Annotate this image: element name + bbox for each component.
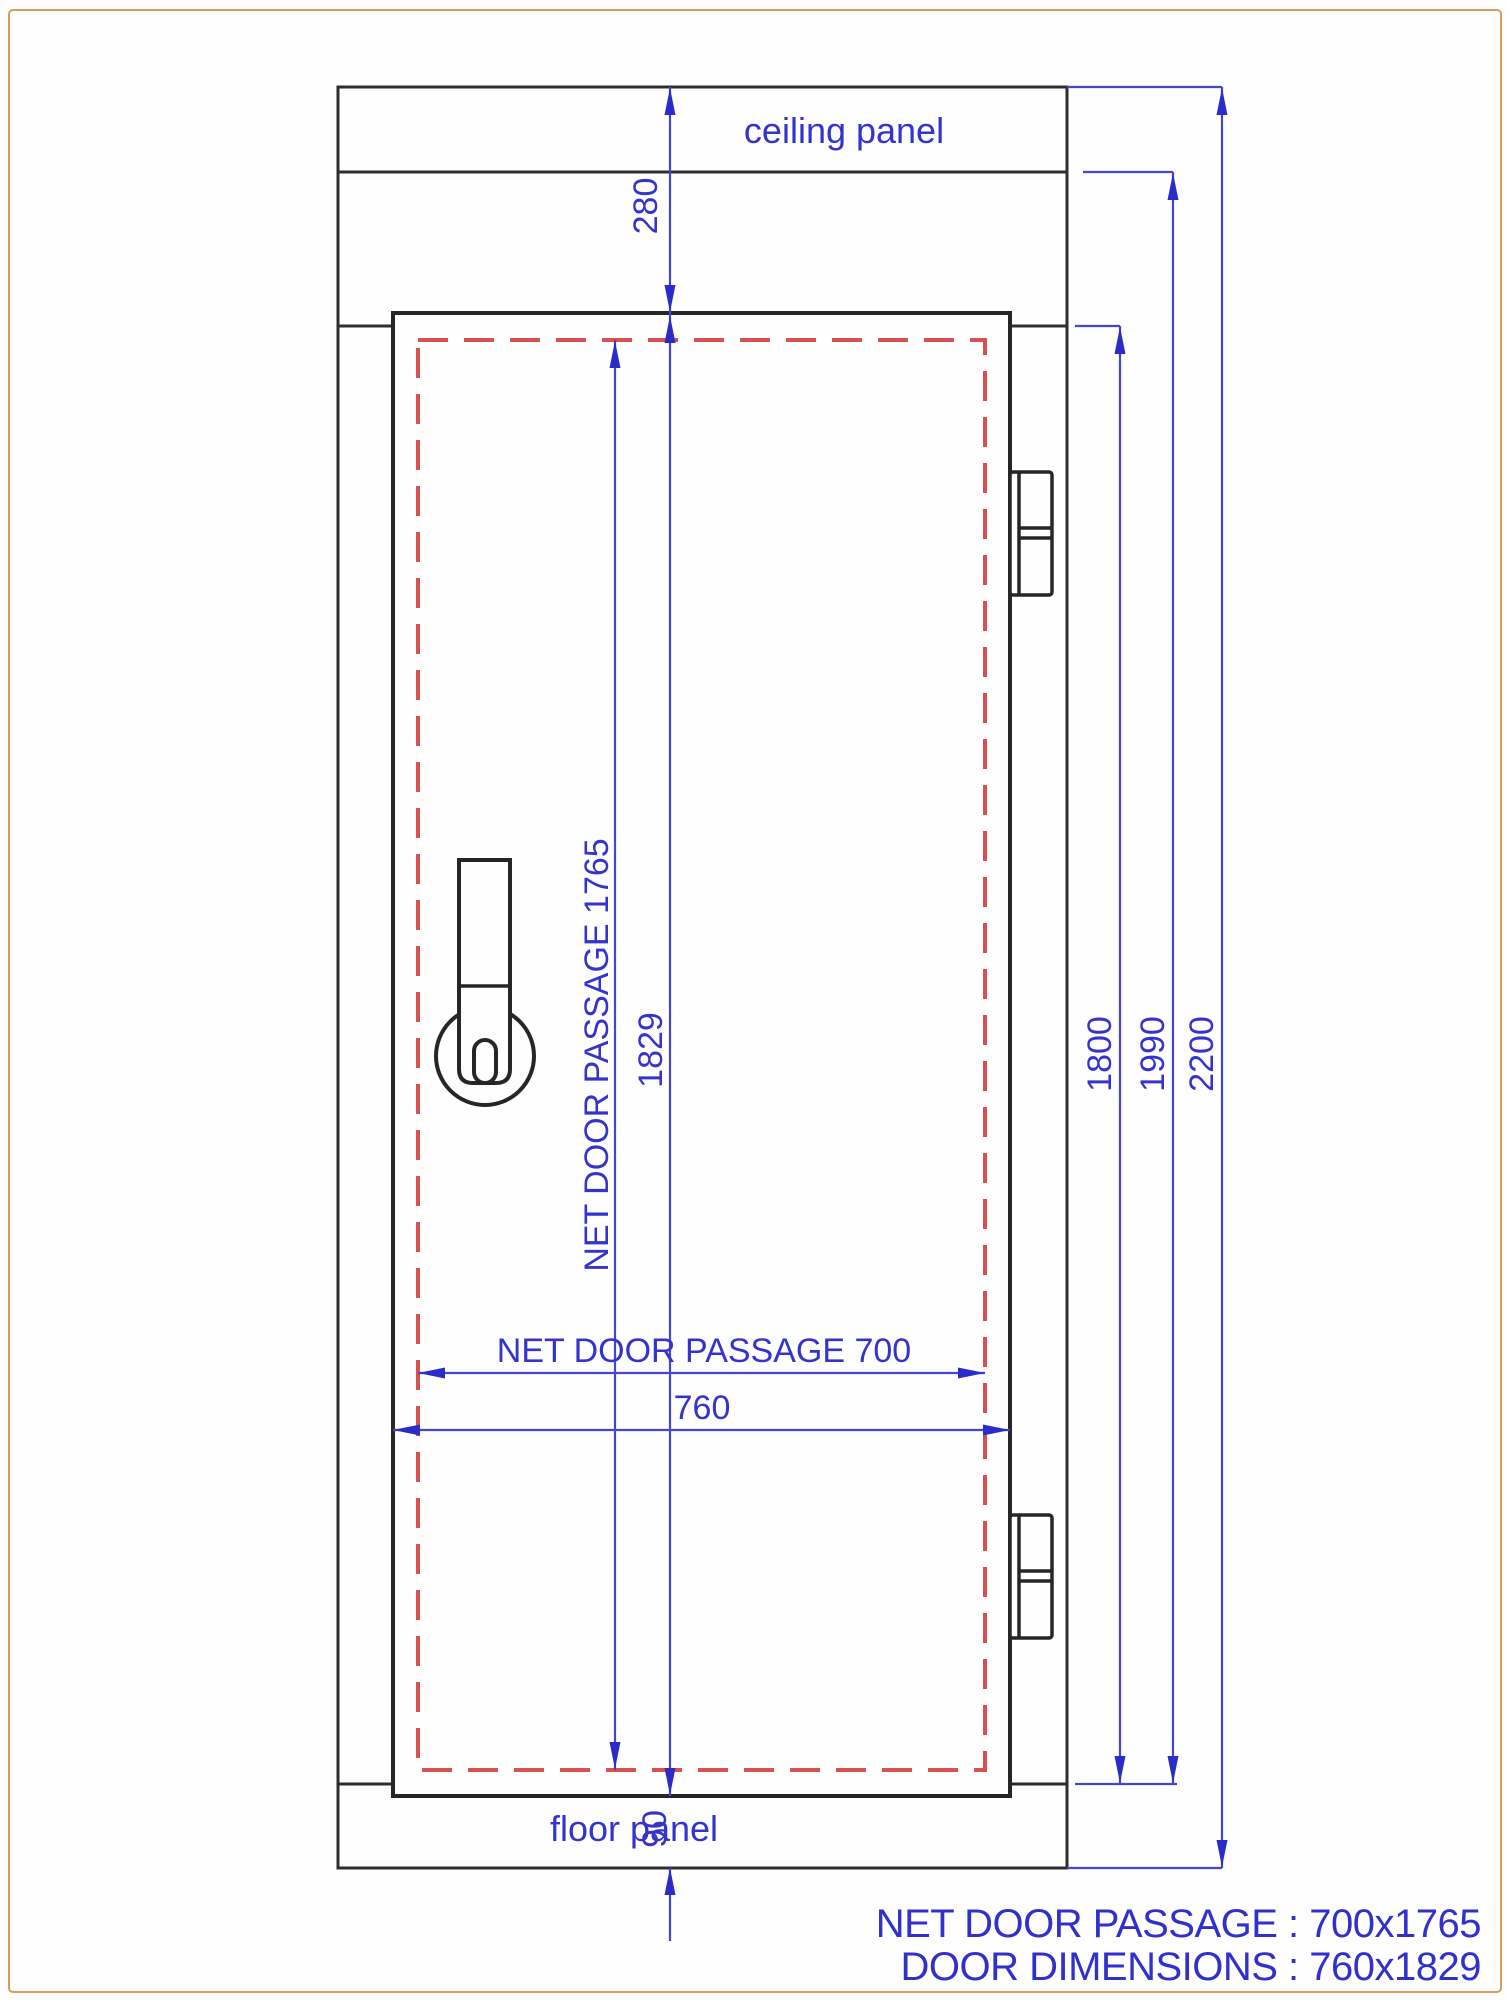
dim-net-passage-width-label: NET DOOR PASSAGE 700: [497, 1334, 911, 1368]
dim-90-arrow: [665, 1868, 676, 1895]
hinge-top: [1010, 472, 1052, 595]
ceiling-panel-label: ceiling panel: [744, 113, 944, 149]
dim-2200-label: 2200: [1185, 1016, 1219, 1092]
drawing-sheet: ceiling panel floor panel 280 NET DOOR P…: [0, 0, 1509, 2000]
hinge-bottom-body: [1010, 1515, 1052, 1638]
summary-door-dimensions: DOOR DIMENSIONS : 760x1829: [876, 1946, 1481, 1989]
summary-net-door-passage: NET DOOR PASSAGE : 700x1765: [876, 1903, 1481, 1946]
summary-text: NET DOOR PASSAGE : 700x1765 DOOR DIMENSI…: [876, 1903, 1481, 1989]
dim-1990-label: 1990: [1136, 1016, 1170, 1092]
keyhole: [474, 1040, 496, 1083]
dim-1990-line: [1083, 172, 1173, 1784]
dim-net-passage-height-label: NET DOOR PASSAGE 1765: [580, 838, 614, 1271]
dim-2200-line: [1067, 87, 1222, 1868]
dim-1829-label: 1829: [634, 1012, 668, 1088]
dim-90-label: 90: [638, 1810, 672, 1848]
hinge-top-body: [1010, 472, 1052, 595]
dim-1800-label: 1800: [1083, 1016, 1117, 1092]
dim-280-label: 280: [629, 178, 663, 235]
dim-760-label: 760: [674, 1391, 731, 1425]
door-elevation-drawing: [0, 0, 1509, 2000]
hinge-bottom: [1010, 1515, 1052, 1638]
floor-panel-label: floor panel: [550, 1811, 718, 1847]
